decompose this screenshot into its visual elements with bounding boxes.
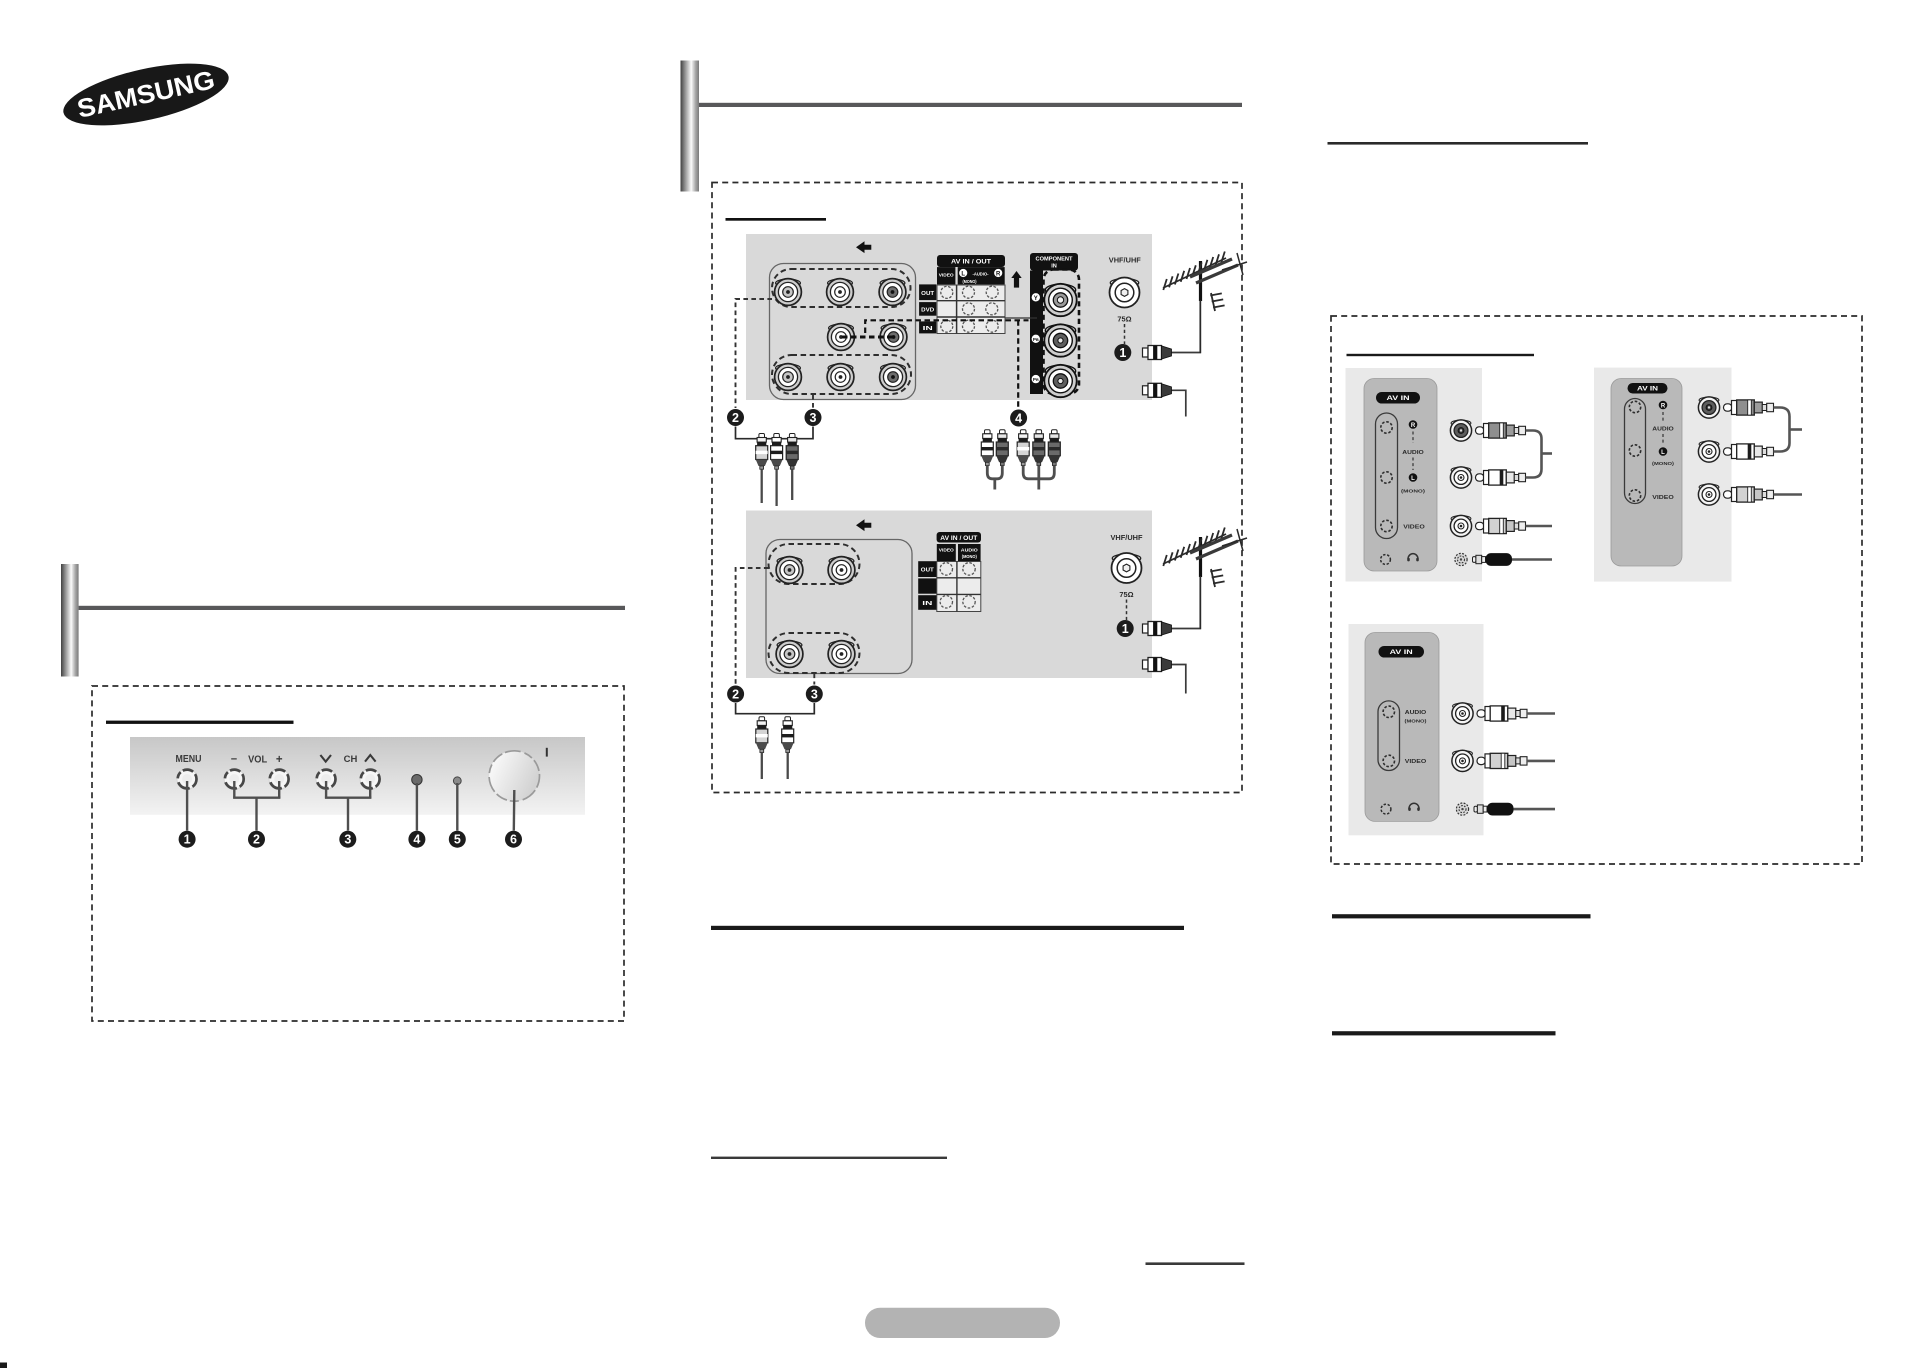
svg-text:OUT: OUT: [921, 568, 934, 574]
svg-text:R: R: [1661, 404, 1666, 410]
svg-text:+: +: [276, 754, 283, 766]
svg-text:AUDIO: AUDIO: [961, 548, 978, 553]
svg-text:OUT: OUT: [921, 291, 934, 297]
svg-text:5: 5: [454, 833, 461, 847]
svg-text:3: 3: [811, 687, 818, 701]
svg-text:3: 3: [810, 411, 817, 425]
svg-text:2: 2: [732, 687, 739, 701]
svg-text:L: L: [1411, 476, 1415, 482]
svg-text:AV IN: AV IN: [1390, 649, 1414, 656]
svg-text:−: −: [231, 754, 237, 766]
svg-text:VIDEO: VIDEO: [939, 548, 954, 554]
svg-text:Y: Y: [1034, 296, 1038, 302]
svg-text:VIDEO: VIDEO: [939, 272, 954, 278]
svg-text:VHF/UHF: VHF/UHF: [1111, 535, 1144, 542]
svg-text:(MONO): (MONO): [962, 554, 978, 559]
svg-text:75Ω: 75Ω: [1117, 315, 1131, 324]
svg-text:6: 6: [510, 833, 517, 847]
svg-text:1: 1: [1119, 346, 1126, 360]
svg-text:L: L: [961, 271, 965, 277]
svg-text:2: 2: [732, 411, 739, 425]
svg-text:VIDEO: VIDEO: [1403, 525, 1425, 531]
svg-text:IN: IN: [922, 601, 932, 607]
svg-text:R: R: [1411, 423, 1416, 429]
svg-text:2: 2: [253, 833, 260, 847]
svg-text:VOL: VOL: [248, 755, 267, 766]
svg-text:-AUDIO-: -AUDIO-: [973, 271, 989, 277]
svg-text:Pʀ: Pʀ: [1033, 377, 1039, 382]
svg-text:MENU: MENU: [176, 754, 202, 765]
svg-text:4: 4: [413, 833, 420, 847]
svg-text:DVD: DVD: [921, 308, 934, 314]
svg-text:VIDEO: VIDEO: [1405, 759, 1427, 765]
svg-text:Pʙ: Pʙ: [1033, 337, 1039, 342]
svg-text:COMPONENT: COMPONENT: [1036, 257, 1074, 263]
svg-text:AV IN: AV IN: [1637, 386, 1659, 393]
svg-text:75Ω: 75Ω: [1119, 590, 1133, 599]
svg-text:R: R: [996, 271, 1001, 277]
svg-text:AV IN / OUT: AV IN / OUT: [951, 258, 991, 265]
svg-text:AV IN: AV IN: [1387, 395, 1411, 402]
svg-text:AUDIO: AUDIO: [1402, 450, 1424, 456]
svg-text:(MONO): (MONO): [1405, 718, 1427, 724]
svg-text:(MONO): (MONO): [1652, 461, 1674, 467]
svg-text:AV IN / OUT: AV IN / OUT: [940, 536, 977, 542]
svg-text:(MONO): (MONO): [963, 279, 977, 284]
svg-text:L: L: [1661, 450, 1665, 456]
svg-text:1: 1: [1122, 622, 1129, 636]
svg-text:IN: IN: [923, 326, 933, 332]
svg-text:AUDIO: AUDIO: [1405, 710, 1427, 716]
svg-text:AUDIO: AUDIO: [1652, 427, 1674, 433]
svg-text:(MONO): (MONO): [1401, 489, 1426, 495]
svg-text:CH: CH: [344, 754, 358, 765]
svg-text:VHF/UHF: VHF/UHF: [1109, 258, 1142, 265]
svg-text:VIDEO: VIDEO: [1652, 495, 1674, 501]
svg-text:1: 1: [184, 833, 191, 847]
svg-text:4: 4: [1015, 411, 1022, 425]
svg-text:3: 3: [344, 833, 351, 847]
